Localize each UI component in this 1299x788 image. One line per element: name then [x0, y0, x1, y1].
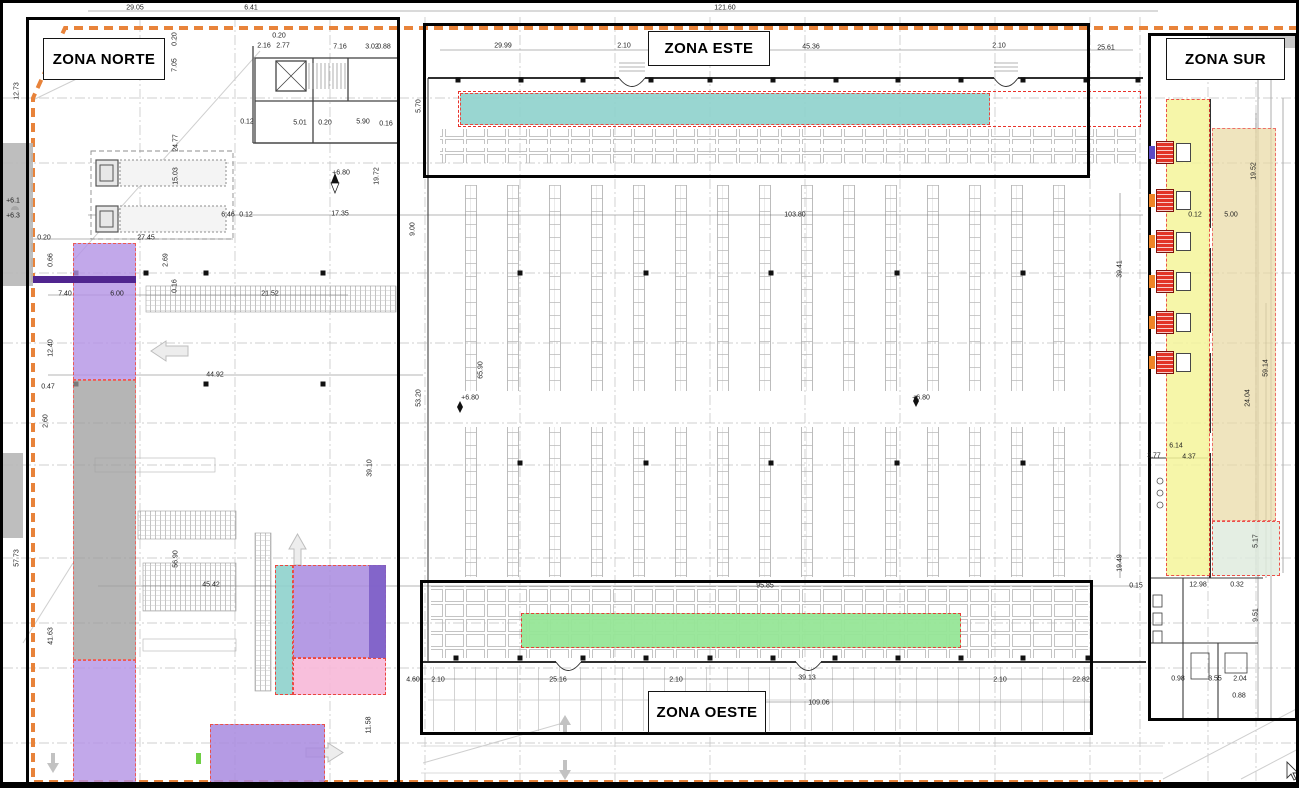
- dim-label: 39.41: [1117, 260, 1124, 278]
- dim-label: 7.40: [58, 291, 72, 298]
- dim-label: 0.12: [240, 119, 254, 126]
- dim-label: 103.80: [784, 212, 805, 219]
- dim-label: 4.37: [1182, 454, 1196, 461]
- dim-label: 3.77: [1147, 453, 1161, 460]
- dim-label: 2.10: [669, 677, 683, 684]
- dim-label: 19.49: [1117, 554, 1124, 572]
- truck-trailer: [1176, 232, 1191, 251]
- truck-sur: [1149, 189, 1193, 213]
- dim-label: 5.90: [356, 119, 370, 126]
- dim-label: 12.40: [48, 339, 55, 357]
- dim-label: 0.88: [377, 44, 391, 51]
- truck-sur: [1149, 351, 1193, 375]
- dim-label: 0.47: [41, 384, 55, 391]
- dim-label: +6.80: [912, 395, 930, 402]
- dim-label: 6.14: [1169, 443, 1183, 450]
- dim-label: 19.72: [374, 167, 381, 185]
- dim-label: 4.60: [406, 677, 420, 684]
- truck-cab: [1156, 270, 1174, 293]
- dim-label: 0.32: [1230, 582, 1244, 589]
- dim-label: 0.98: [1171, 676, 1185, 683]
- dim-label: 41.63: [48, 627, 55, 645]
- truck-tick: [1149, 275, 1155, 288]
- truck-tick: [1149, 146, 1155, 159]
- truck-trailer: [1176, 143, 1191, 162]
- floor-plan-canvas: ZONA NORTEZONA ESTEZONA SURZONA OESTE29.…: [0, 0, 1299, 788]
- dim-label: 53.20: [416, 389, 423, 407]
- zone-label-norte: ZONA NORTE: [43, 38, 165, 80]
- dim-label: 44.92: [206, 372, 224, 379]
- dim-label: 17.35: [331, 211, 349, 218]
- dim-label: 7.05: [172, 58, 179, 72]
- truck-sur: [1149, 270, 1193, 294]
- truck-tick: [1149, 316, 1155, 329]
- dim-label: 5.70: [416, 99, 423, 113]
- rack-rows-main-hall: [443, 185, 1088, 577]
- dim-label: 95.85: [756, 583, 774, 590]
- overlay-outside-gray-left-mid: [3, 453, 23, 538]
- dim-label: 6.00: [110, 291, 124, 298]
- zone-outline-sur: [1148, 33, 1298, 721]
- dim-label: 2.77: [276, 43, 290, 50]
- dim-label: 0.88: [1232, 693, 1246, 700]
- truck-tick: [1149, 194, 1155, 207]
- dim-label: +6.3: [6, 213, 20, 220]
- dim-label: 0.20: [272, 33, 286, 40]
- dim-label: 109.06: [808, 700, 829, 707]
- dim-label: 5.17: [1253, 534, 1260, 548]
- dim-label: 56.90: [173, 550, 180, 568]
- truck-cab: [1156, 351, 1174, 374]
- dim-label: 0.16: [379, 121, 393, 128]
- zone-outline-norte: [26, 17, 400, 787]
- dim-label: 9.00: [410, 222, 417, 236]
- dim-label: 12.73: [14, 82, 21, 100]
- dim-label: 39.13: [798, 675, 816, 682]
- dim-label: 0.12: [1188, 212, 1202, 219]
- dim-label: 27.45: [137, 235, 155, 242]
- dim-label: 65.90: [478, 361, 485, 379]
- dim-label: 57.73: [14, 549, 21, 567]
- dim-label: 6.46: [221, 212, 235, 219]
- truck-trailer: [1176, 353, 1191, 372]
- dim-label: 24.77: [173, 134, 180, 152]
- dim-label: 29.05: [126, 5, 144, 12]
- dim-label: 7.16: [333, 44, 347, 51]
- dim-label: +6.80: [461, 395, 479, 402]
- truck-trailer: [1176, 272, 1191, 291]
- dim-label: 2.04: [1233, 676, 1247, 683]
- dim-label: 0.16: [172, 279, 179, 293]
- truck-sur: [1149, 230, 1193, 254]
- dim-label: +6.80: [332, 170, 350, 177]
- truck-sur: [1149, 311, 1193, 335]
- dim-label: 9.51: [1253, 608, 1260, 622]
- dim-label: 2.16: [257, 43, 271, 50]
- truck-sur: [1149, 141, 1193, 165]
- dim-label: 39.10: [367, 459, 374, 477]
- truck-cab: [1156, 230, 1174, 253]
- truck-cab: [1156, 311, 1174, 334]
- dim-label: 0.15: [1129, 583, 1143, 590]
- zone-label-este: ZONA ESTE: [648, 31, 770, 66]
- dim-label: 29.99: [494, 43, 512, 50]
- dim-label: 0.20: [37, 235, 51, 242]
- dim-label: 15.03: [173, 167, 180, 185]
- dim-label: 2.10: [617, 43, 631, 50]
- dim-label: 45.36: [802, 44, 820, 51]
- truck-trailer: [1176, 313, 1191, 332]
- dim-label: 121.60: [714, 5, 735, 12]
- dim-label: 2.69: [163, 253, 170, 267]
- dim-label: 2.10: [431, 677, 445, 684]
- dim-label: 2.60: [43, 414, 50, 428]
- dim-label: 19.52: [1251, 162, 1258, 180]
- dim-label: 45.42: [202, 582, 220, 589]
- truck-trailer: [1176, 191, 1191, 210]
- dim-label: 11.58: [366, 717, 373, 734]
- dim-label: 25.16: [549, 677, 567, 684]
- dim-label: 24.04: [1245, 389, 1252, 407]
- truck-cab: [1156, 189, 1174, 212]
- dim-label: 2.10: [992, 43, 1006, 50]
- dim-label: 3.55: [1208, 676, 1222, 683]
- dim-label: 0.66: [48, 253, 55, 267]
- dim-label: 0.12: [239, 212, 253, 219]
- dim-label: 22.82: [1072, 677, 1090, 684]
- dim-label: 5.01: [293, 120, 307, 127]
- dim-label: 59.14: [1263, 359, 1270, 377]
- dim-label: 25.61: [1097, 45, 1115, 52]
- dim-label: 21.52: [261, 291, 279, 298]
- dim-label: 6.41: [244, 5, 258, 12]
- dim-label: 5.00: [1224, 212, 1238, 219]
- truck-cab: [1156, 141, 1174, 164]
- zone-label-sur: ZONA SUR: [1166, 38, 1285, 80]
- dim-label: +6.1: [6, 198, 20, 205]
- truck-tick: [1149, 356, 1155, 369]
- dim-label: 2.10: [993, 677, 1007, 684]
- mouse-cursor: [1285, 761, 1299, 783]
- zone-label-oeste: ZONA OESTE: [648, 691, 766, 733]
- dim-label: 12.98: [1189, 582, 1207, 589]
- dim-label: 0.20: [318, 120, 332, 127]
- truck-tick: [1149, 235, 1155, 248]
- dim-label: 0.20: [172, 32, 179, 46]
